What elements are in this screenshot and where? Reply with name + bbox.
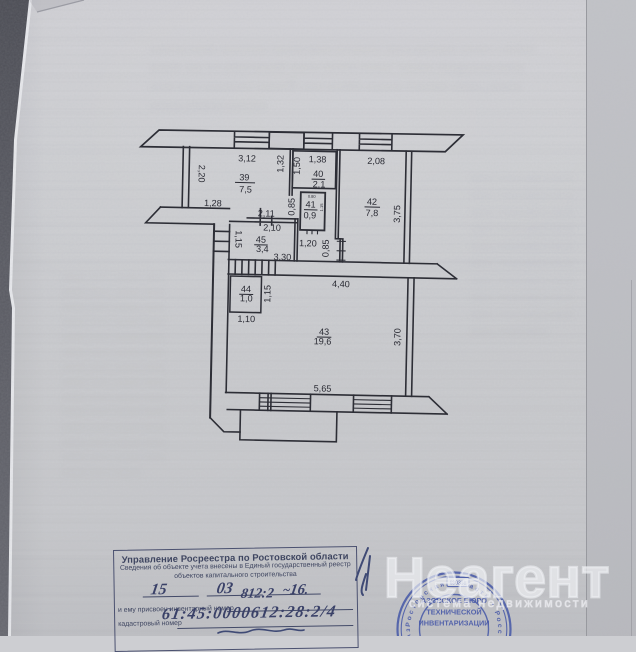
svg-text:ИНВЕНТАРИЗАЦИИ: ИНВЕНТАРИЗАЦИИ: [419, 619, 490, 628]
svg-text:Ростовская область • Российска: Ростовская область • Российская Федераци…: [0, 0, 503, 636]
